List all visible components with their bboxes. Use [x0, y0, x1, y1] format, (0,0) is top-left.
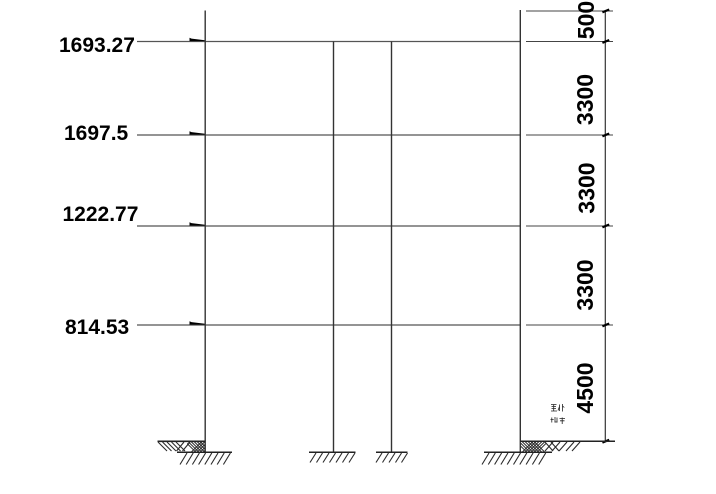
svg-text:1222.77: 1222.77 [63, 203, 139, 226]
svg-text:3300: 3300 [574, 162, 600, 213]
svg-text:4500: 4500 [572, 362, 598, 413]
svg-text:1693.27: 1693.27 [59, 34, 135, 57]
svg-text:3300: 3300 [572, 259, 598, 310]
svg-text:500: 500 [573, 1, 599, 39]
svg-text:814.53: 814.53 [65, 316, 129, 339]
svg-text:1697.5: 1697.5 [64, 122, 129, 145]
svg-text:3300: 3300 [572, 74, 598, 125]
